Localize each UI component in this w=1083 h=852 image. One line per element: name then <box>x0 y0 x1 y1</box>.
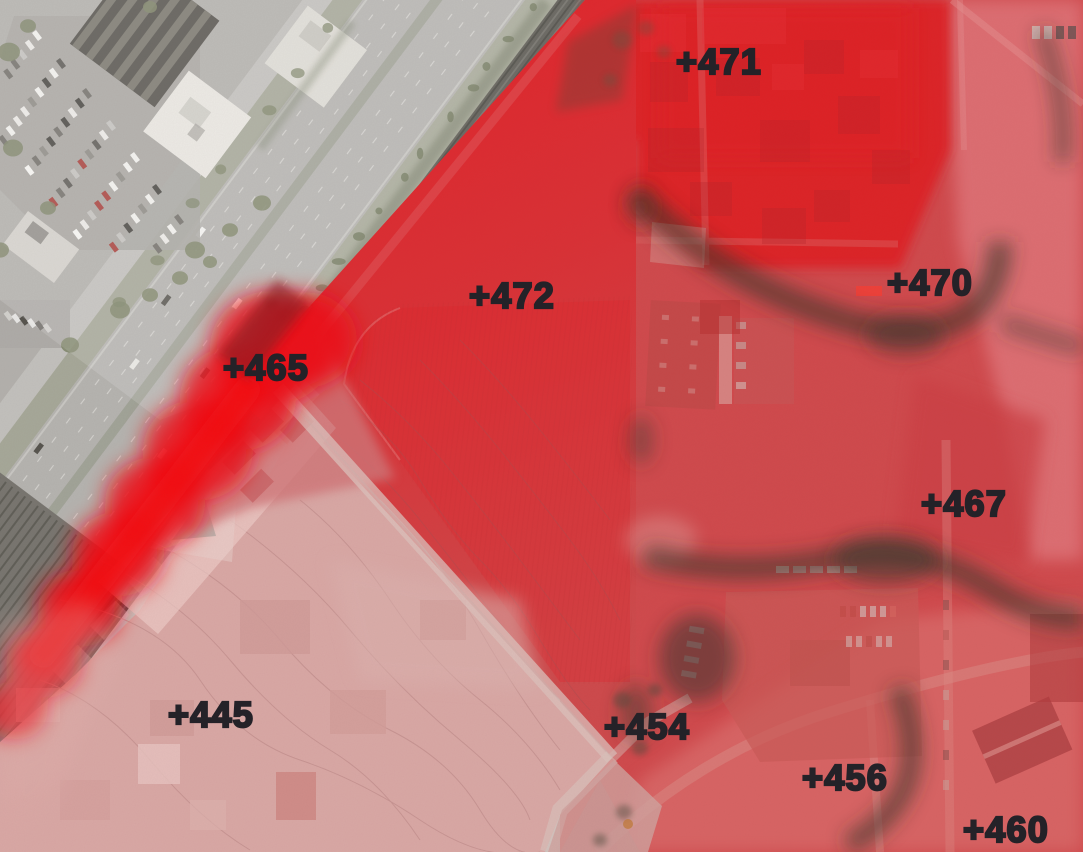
svg-text:+445: +445 <box>168 694 254 735</box>
svg-text:+467: +467 <box>921 483 1007 524</box>
svg-text:+460: +460 <box>963 809 1049 850</box>
svg-text:+471: +471 <box>676 41 762 82</box>
svg-text:+454: +454 <box>604 706 690 747</box>
svg-text:+456: +456 <box>802 757 888 798</box>
svg-text:+470: +470 <box>887 262 973 303</box>
svg-text:+472: +472 <box>469 275 555 316</box>
svg-text:+465: +465 <box>223 347 309 388</box>
